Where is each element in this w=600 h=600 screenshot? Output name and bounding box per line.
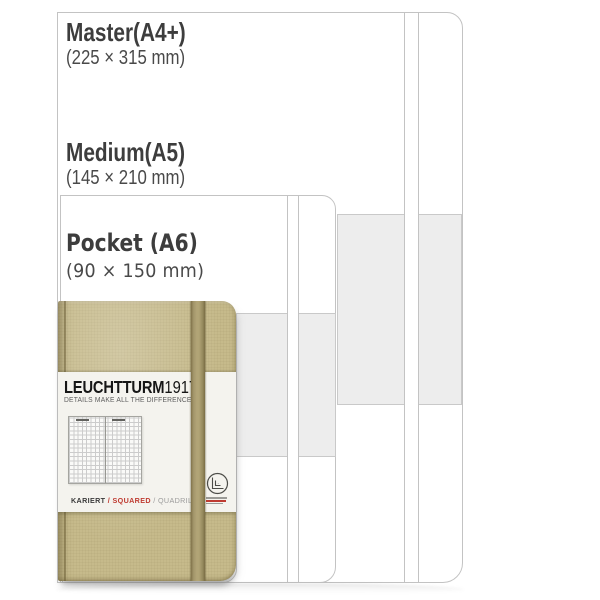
ruling-german: KARIERT — [71, 496, 105, 505]
size-dimensions-master: (225 × 315 mm) — [66, 47, 192, 69]
master-exposed-panel-left — [337, 214, 405, 405]
seal-microtext — [206, 496, 228, 505]
size-name-pocket: Pocket (A6) — [66, 228, 198, 258]
brand-logo: LEUCHTTURM1917 — [64, 378, 197, 396]
size-dimensions-medium: (145 × 210 mm) — [66, 167, 191, 189]
ruling-type-label: KARIERT / SQUARED / QUADRILLÉ — [71, 496, 202, 505]
seal-microtext-line-red — [206, 500, 226, 502]
medium-exposed-panel-left — [236, 313, 288, 457]
medium-exposed-panel-right — [298, 313, 336, 457]
paper-wrap-label: LEUCHTTURM1917 DETAILS MAKE ALL THE DIFF… — [58, 372, 236, 512]
seal-microtext-line — [206, 503, 223, 505]
brand-name: LEUCHTTURM — [64, 377, 164, 397]
master-elastic-band-outline — [404, 13, 419, 582]
medium-elastic-band-outline — [287, 196, 299, 582]
date-field-mark-right — [112, 419, 125, 422]
size-label-pocket: Pocket (A6) (90 × 150 mm) — [66, 228, 223, 284]
size-label-master: Master(A4+) (225 × 315 mm) — [66, 17, 216, 69]
size-label-medium: Medium(A5) (145 × 210 mm) — [66, 137, 215, 189]
page-spread-divider — [105, 417, 106, 483]
date-field-mark-left — [76, 419, 89, 422]
size-name-medium: Medium(A5) — [66, 137, 185, 167]
seal-microtext-line — [206, 497, 227, 499]
ruling-english: SQUARED — [112, 496, 150, 505]
elastic-band — [191, 301, 205, 581]
pocket-notebook-photo: LEUCHTTURM1917 DETAILS MAKE ALL THE DIFF… — [58, 301, 236, 581]
size-comparison-figure: Master(A4+) (225 × 315 mm) Medium(A5) (1… — [0, 0, 600, 600]
brand-tagline: DETAILS MAKE ALL THE DIFFERENCE. — [64, 397, 190, 405]
squared-paper-thumbnail — [68, 416, 142, 484]
size-name-master: Master(A4+) — [66, 17, 186, 47]
ruling-separator: / — [108, 496, 110, 505]
size-dimensions-pocket: (90 × 150 mm) — [66, 258, 210, 284]
master-exposed-panel-right — [418, 214, 462, 405]
ground-shadow — [56, 583, 464, 594]
ruling-separator: / — [153, 496, 155, 505]
leuchtturm-seal-icon — [206, 472, 230, 506]
